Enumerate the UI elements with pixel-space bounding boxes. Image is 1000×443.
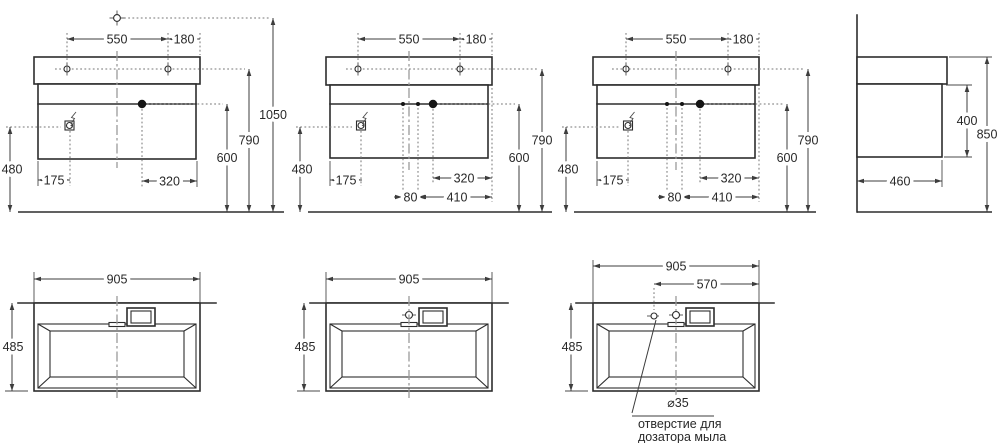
hole-point-icon [416,102,420,106]
faucet-platform [127,308,155,326]
dim-label: 180 [733,32,754,46]
dim-label: 850 [977,128,998,142]
hole-diameter-label: ⌀35 [667,396,688,410]
dim-label: 1050 [259,108,287,122]
front-view-variant-2: 550 180 790 600 480 175 320 80 410 [292,32,553,212]
dim-label: 480 [292,163,313,177]
drawing-canvas: 550 180 1050 790 600 480 175 320 [0,0,1000,443]
dim-label: 550 [107,32,128,46]
dim-label: 320 [159,174,180,188]
dim-label: 600 [217,151,238,165]
front-view-overall: 550 180 1050 790 600 480 175 320 [2,11,287,213]
dim-label: 905 [666,259,687,273]
dim-label: 320 [454,171,475,185]
mounting-point-icon [110,11,125,26]
side-view: 400 850 460 [857,15,997,212]
front-view-variant-3: 550 180 790 600 480 175 320 80 410 [558,32,819,212]
plan-view-no-holes: 905 485 [3,272,216,398]
plan-view-two-holes: 905 570 485 ⌀35 отверстие для дозатора м… [562,259,774,443]
washbasin-technical-drawing: 550 180 1050 790 600 480 175 320 [0,0,1000,443]
dim-label: 485 [3,340,24,354]
dim-label: 460 [890,174,911,188]
dim-label: 600 [509,151,530,165]
dim-label: 180 [466,32,487,46]
dim-label: 600 [777,151,798,165]
faucet-platform [419,308,447,326]
dim-label: 550 [399,32,420,46]
hole-point-icon [680,102,684,106]
soap-dispenser-note-line2: дозатора мыла [638,430,726,443]
dim-label: 80 [668,190,682,204]
dim-label: 550 [666,32,687,46]
drain-point-icon [429,100,437,108]
dim-label: 175 [44,173,65,187]
soap-dispenser-note-line1: отверстие для [638,417,722,431]
dim-label: 400 [957,114,978,128]
dim-label: 180 [174,32,195,46]
dim-label: 480 [558,163,579,177]
faucet-platform [686,308,714,326]
dim-label: 905 [107,272,128,286]
dim-label: 175 [603,173,624,187]
plan-view-one-hole: 905 485 [295,272,508,398]
dim-label: 485 [295,340,316,354]
dim-label: 175 [336,173,357,187]
dim-label: 410 [712,190,733,204]
hole-point-icon [665,102,669,106]
dim-label: 905 [399,272,420,286]
dim-label: 790 [798,134,819,148]
dim-label: 410 [447,190,468,204]
dim-label: 320 [721,171,742,185]
hole-point-icon [401,102,405,106]
dim-label: 485 [562,340,583,354]
dim-label: 790 [532,134,553,148]
drain-point-icon [138,100,146,108]
dim-label: 570 [697,277,718,291]
dim-label: 480 [2,163,23,177]
dim-label: 790 [239,134,260,148]
drain-point-icon [696,100,704,108]
dim-label: 80 [404,190,418,204]
